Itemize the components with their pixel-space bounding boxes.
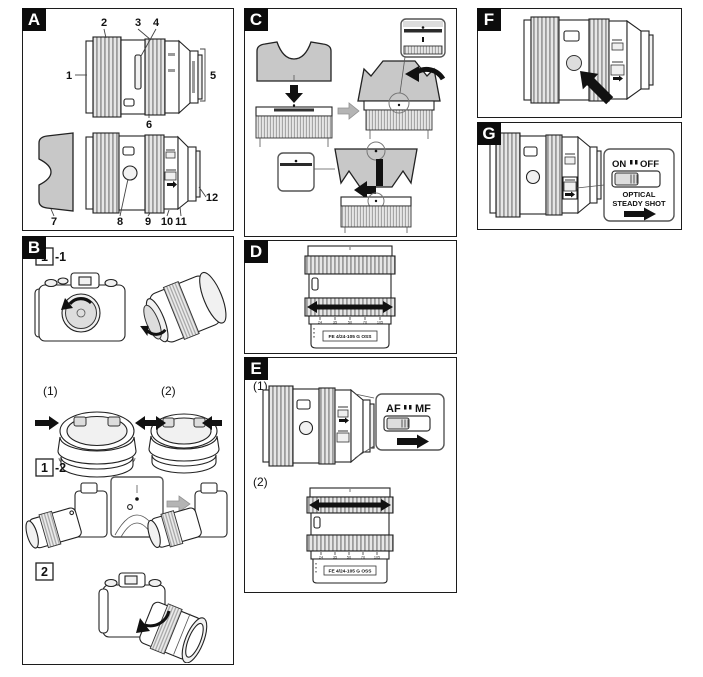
camera-body-cap (35, 273, 125, 341)
zoom-ring (307, 535, 393, 551)
oss-name-line1: OPTICAL (623, 190, 656, 199)
svg-text:2: 2 (41, 565, 48, 579)
panel-f-label: F (477, 8, 501, 31)
oss-inset: ON OFF OPTICAL STEADY SHOT (604, 149, 674, 221)
hood-storage-mark-inset (278, 153, 335, 191)
lens-vertical-zoom: 24 35 50 70 105 FE 4/24-105 G OSS (305, 246, 395, 348)
lens-hood-side (39, 133, 73, 211)
sub-step-2: (2) (161, 384, 176, 398)
lens-vertical-focus: 24 35 50 70 105 FE 4/24-105 G OSS (307, 488, 393, 583)
lens-side-view (490, 133, 601, 217)
lens-front-barrel (256, 104, 332, 147)
svg-text:-2: -2 (55, 461, 66, 475)
panel-c-illustration (245, 9, 455, 235)
lens-nameplate (135, 55, 141, 89)
mf-label: MF (415, 403, 431, 415)
lens-side-view (524, 17, 653, 103)
lens-marking: FE 4/24-105 G OSS (329, 334, 373, 340)
af-mf-switch-small (338, 410, 348, 417)
callout-9: 9 (145, 216, 151, 228)
oss-name-line2: STEADY SHOT (612, 199, 666, 208)
panel-e-illustration: (1) AF MF (245, 358, 455, 591)
sub-step-2: (2) (253, 475, 268, 489)
on-label: ON (612, 159, 626, 170)
svg-text:-1: -1 (55, 250, 66, 264)
oss-switch-small (165, 172, 176, 180)
panel-g-label: G (477, 122, 501, 145)
oss-switch-small (611, 65, 624, 75)
panel-c: C (244, 8, 457, 237)
callout-6: 6 (146, 119, 152, 131)
panel-b-illustration: 1 -1 (1) (23, 237, 232, 663)
hood-mounted (358, 61, 440, 139)
panel-a-illustration: 1 2 3 4 5 6 (23, 9, 232, 229)
callout-3: 3 (135, 17, 141, 29)
focus-hold-button (123, 166, 137, 180)
camera-with-lens (99, 573, 212, 663)
callout-1: 1 (66, 70, 72, 82)
panel-a: A 1 2 3 4 5 (22, 8, 234, 231)
panel-b-label: B (22, 236, 46, 259)
panel-d-label: D (244, 240, 268, 263)
oss-switch-small (337, 433, 349, 442)
af-label: AF (386, 403, 401, 415)
panel-c-label: C (244, 8, 268, 31)
focus-hold-button (567, 56, 582, 71)
lens-hood-stored (341, 193, 411, 233)
callout-12: 12 (206, 192, 218, 204)
callout-4: 4 (153, 17, 160, 29)
attach-lens-left (23, 483, 107, 552)
next-step-arrow (338, 103, 359, 119)
callout-10: 10 (161, 216, 173, 228)
step-2-label: 2 (36, 563, 53, 580)
panel-a-label: A (22, 8, 46, 31)
lens-side-view-top (86, 37, 202, 117)
af-mf-switch-small (565, 157, 575, 164)
panel-f-illustration (478, 9, 680, 116)
callout-11: 11 (175, 216, 187, 228)
lens-rear-cap (130, 268, 232, 353)
sub-step-1: (1) (43, 384, 58, 398)
panel-f: F (477, 8, 682, 118)
off-label: OFF (640, 159, 659, 170)
attach-down-arrow (285, 85, 303, 103)
lens-marking: FE 4/24-105 G OSS (329, 569, 373, 575)
lens-side-view-bottom (86, 133, 200, 213)
focus-ring (305, 256, 395, 274)
callout-5: 5 (210, 70, 216, 82)
panel-g-illustration: ON OFF OPTICAL STEADY SHOT (478, 123, 680, 228)
svg-text:1: 1 (41, 461, 48, 475)
callout-7: 7 (51, 216, 57, 228)
oss-switch-small (564, 182, 576, 191)
pinch-arrow-left (35, 416, 59, 430)
af-mf-switch-small (166, 152, 175, 158)
af-mf-inset: AF MF (376, 394, 444, 450)
panel-e: E (1) AF MF (244, 357, 457, 593)
lens-side-view (263, 386, 374, 466)
callout-2: 2 (101, 17, 107, 29)
panel-g: G ON OFF (477, 122, 682, 230)
cap-tab-left (74, 417, 86, 426)
manual-page: A 1 2 3 4 5 (0, 0, 703, 677)
callout-8: 8 (117, 216, 123, 228)
panel-e-label: E (244, 357, 268, 380)
cap-tab-right (108, 417, 120, 426)
panel-b: B 1 -1 (22, 236, 234, 665)
panel-d: D 24 35 50 70 105 (244, 240, 457, 354)
af-mf-switch-small (612, 43, 623, 50)
step-1-2-label: 1 -2 (36, 459, 66, 476)
front-cap-pinch-center (146, 414, 222, 473)
panel-d-illustration: 24 35 50 70 105 FE 4/24-105 G OSS (245, 241, 455, 352)
